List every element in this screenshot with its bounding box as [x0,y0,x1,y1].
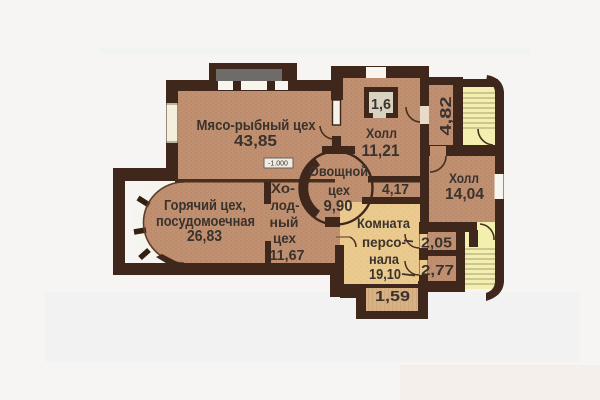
svg-text:Горячий цех,: Горячий цех, [164,198,246,214]
svg-text:персо-: персо- [362,234,406,250]
svg-text:9,90: 9,90 [324,198,353,215]
svg-text:14,04: 14,04 [445,186,484,203]
svg-text:ный: ный [270,214,299,230]
svg-text:Хо-: Хо- [271,180,295,196]
svg-text:нала: нала [369,251,399,267]
svg-text:4,82: 4,82 [438,97,455,136]
svg-text:43,85: 43,85 [234,133,277,150]
svg-text:26,83: 26,83 [187,228,222,245]
svg-text:2,05: 2,05 [421,235,452,252]
svg-text:11,67: 11,67 [270,247,305,264]
svg-text:Холл: Холл [449,170,479,186]
svg-text:Холл: Холл [366,125,397,141]
svg-text:Комната: Комната [357,215,410,231]
svg-text:-1.000: -1.000 [268,161,288,168]
svg-text:лод-: лод- [271,197,300,213]
svg-text:4,17: 4,17 [382,182,409,198]
svg-text:Овощной: Овощной [309,163,368,179]
svg-text:11,21: 11,21 [362,141,400,160]
svg-text:цех: цех [328,182,350,198]
svg-text:цех: цех [273,230,296,246]
svg-text:Мясо-рыбный цех: Мясо-рыбный цех [197,117,317,134]
svg-text:1,6: 1,6 [371,97,391,113]
svg-text:19,10: 19,10 [369,266,401,283]
svg-text:1,59: 1,59 [375,288,410,305]
svg-text:2,77: 2,77 [421,262,454,279]
